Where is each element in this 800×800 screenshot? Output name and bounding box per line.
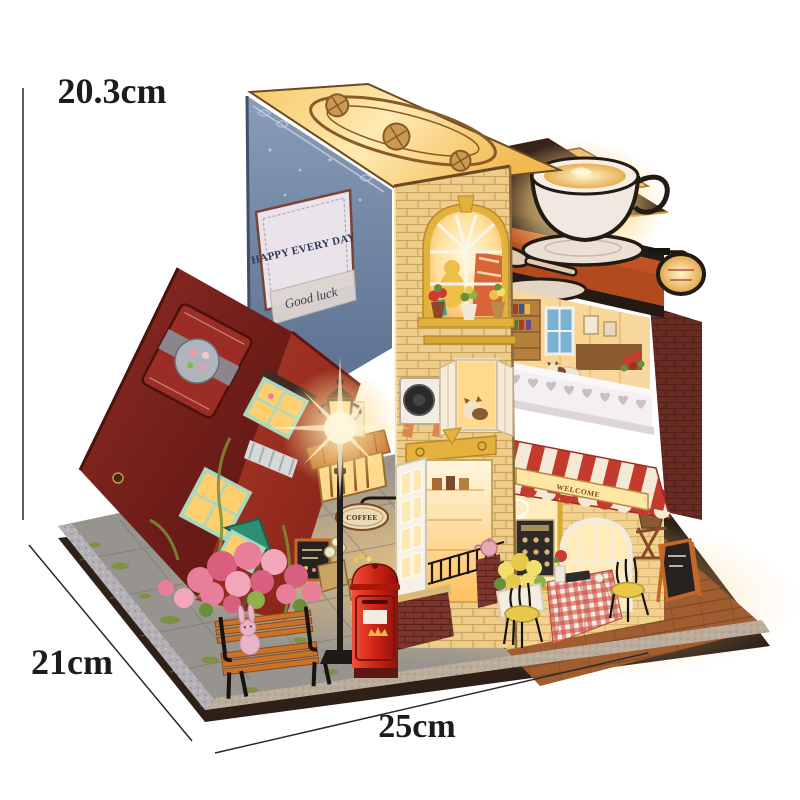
dimension-depth-label: 21cm bbox=[31, 642, 113, 682]
miniature-scene: WELCOME HAPPY EVERY DAY Good luck bbox=[0, 0, 800, 800]
product-dimension-image: WELCOME HAPPY EVERY DAY Good luck bbox=[0, 0, 800, 800]
dimension-height-label: 20.3cm bbox=[58, 71, 167, 111]
cover-stud bbox=[113, 473, 123, 483]
postbox-label bbox=[363, 610, 387, 624]
casement-window bbox=[440, 360, 513, 436]
a-frame-easel bbox=[658, 540, 700, 602]
coffee-sign-text: COFFEE bbox=[346, 514, 377, 522]
dimension-width-label: 25cm bbox=[378, 708, 455, 745]
postbox bbox=[350, 563, 400, 678]
